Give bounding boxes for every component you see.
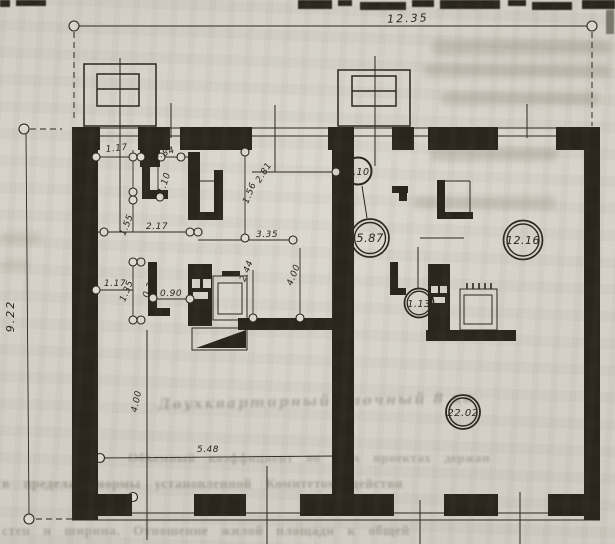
- scanned-page: Двухквартирный блочный 8 кв Объемный коэ…: [0, 0, 615, 544]
- floor-plan-drawing: 12.35 9.22 5.48: [0, 0, 615, 544]
- paper-grain: [0, 0, 615, 544]
